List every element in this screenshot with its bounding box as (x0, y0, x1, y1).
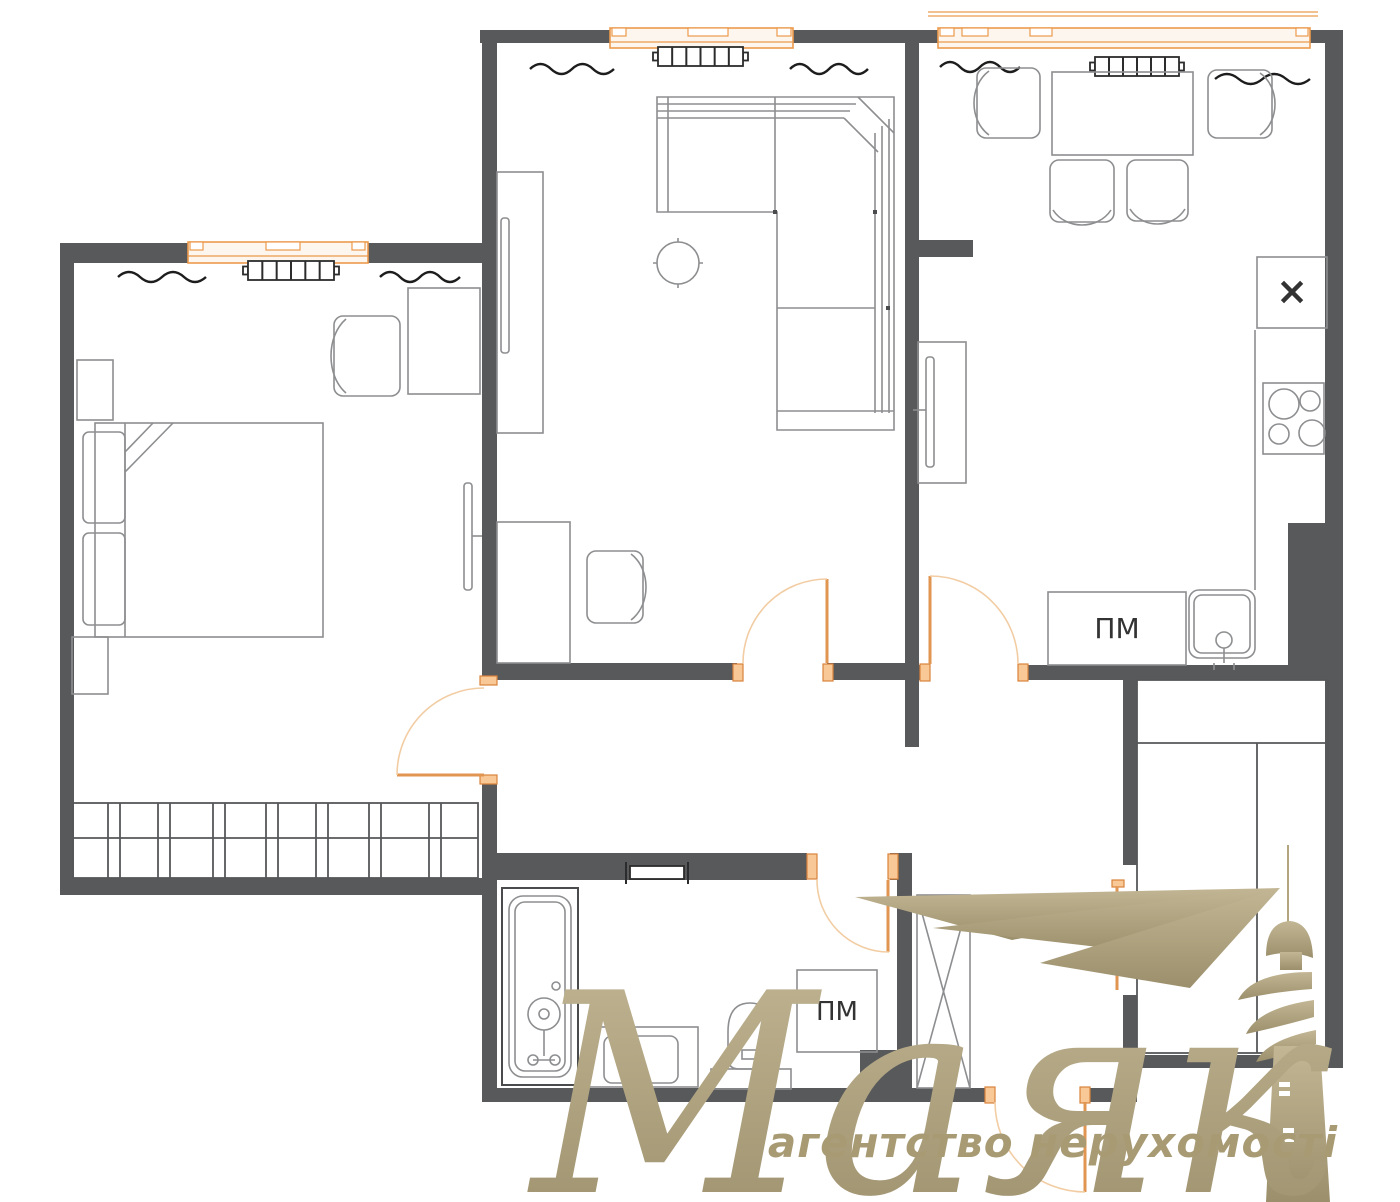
stove-burner (1269, 389, 1299, 419)
wall-living-top-right (793, 30, 920, 43)
door-jamb-kitchen (1018, 664, 1028, 681)
door-jamb-wardrobe (1112, 880, 1124, 887)
bed-blanket-fold (125, 423, 173, 472)
floorplan-canvas: ×ПМПММаякагентство нерухомості (0, 0, 1400, 1202)
curtain-living-left (530, 64, 614, 74)
wall-bedroom-bottom (60, 878, 497, 895)
curtain-bedroom-left (118, 272, 206, 282)
door-jamb-bath (807, 854, 817, 879)
bed-pillow (83, 432, 125, 523)
chair-living-seat (587, 551, 643, 623)
window-bedroom-mullion (190, 242, 203, 250)
radiator-kitchen (1090, 57, 1184, 76)
window-living-mullion (688, 28, 728, 36)
wall-living-kitchen (905, 30, 919, 747)
wall-living-top-left (480, 30, 610, 43)
side-table-ticks (653, 238, 703, 288)
dining-chair (1127, 160, 1188, 224)
towel-warmer-body (630, 866, 684, 879)
window-kitchen-mullion (940, 28, 954, 36)
sofa-button (886, 306, 890, 310)
sofa-button (773, 210, 777, 214)
kitchen-sink-basin (1194, 595, 1250, 653)
bed-pillow (83, 533, 125, 625)
sofa-corner (844, 97, 894, 152)
dishwasher-label: ПМ (1094, 612, 1139, 645)
wall-living-bottom-left (497, 663, 737, 680)
wardrobe-bedroom-dividers (108, 803, 441, 878)
door-jamb-bedroom (480, 676, 497, 685)
towel-warmer (626, 862, 688, 884)
radiator-living (653, 47, 748, 66)
door-jamb-living (733, 664, 743, 681)
kitchen-faucet (1216, 632, 1232, 648)
door-jamb-bath (888, 854, 898, 879)
door-jamb-kitchen (920, 664, 930, 681)
dining-table (1052, 72, 1193, 155)
logo-subtitle: агентство нерухомості (768, 1118, 1338, 1167)
door-arc-bedroom (397, 688, 484, 775)
sofa-back-right (875, 119, 889, 413)
window-living-mullion (777, 28, 791, 36)
window-kitchen-mullion (1030, 28, 1052, 36)
door-arc-kitchen (930, 576, 1018, 664)
chair-living (587, 551, 646, 623)
wall-living-bottom-right (827, 663, 905, 680)
sofa-button (873, 210, 877, 214)
window-kitchen-mullion (962, 28, 988, 36)
tv-stand-living (497, 172, 543, 433)
window-bedroom-mullion (352, 242, 365, 250)
floorplan-svg: ×ПМПММаякагентство нерухомості (0, 0, 1400, 1202)
stove-burner (1299, 420, 1325, 446)
wardrobe-bedroom (73, 803, 478, 878)
stove-burner (1300, 391, 1320, 411)
dining-chair-seat (977, 68, 1040, 138)
radiator-bedroom (243, 261, 339, 280)
dining-chair-seat (1050, 160, 1114, 222)
wall-kitchen-bottom-right (1020, 665, 1343, 680)
dining-chair (974, 68, 1040, 138)
desk-bedroom (408, 288, 480, 394)
tv-kitchen (926, 357, 934, 467)
wall-bedroom-left (60, 243, 74, 895)
sofa-seat-dividers-right (777, 308, 894, 411)
nightstand (72, 637, 108, 694)
chair-bedroom (331, 316, 400, 396)
dining-chair (1050, 160, 1114, 225)
wall-kitchen-top-left (920, 30, 938, 43)
door-jamb-living (823, 664, 833, 681)
door-arc-living (743, 579, 827, 663)
window-kitchen (938, 28, 1310, 48)
desk-living (497, 522, 570, 663)
wall-bedroom-living (482, 30, 497, 677)
nightstand (77, 360, 113, 420)
window-bedroom-mullion (266, 242, 300, 250)
dining-chair-seat (1127, 160, 1188, 221)
side-table (657, 242, 699, 284)
stove-burner (1269, 424, 1289, 444)
window-kitchen-mullion (1296, 28, 1308, 36)
wall-bedroom-hall (482, 775, 497, 1100)
extract-symbol: × (1276, 269, 1308, 313)
wall-kitchen-stub (919, 240, 973, 257)
wall-ward-left-top (1123, 680, 1137, 865)
curtain-bedroom-right (380, 272, 460, 282)
chair-bedroom-seat (334, 316, 400, 396)
sofa-back-lines (657, 104, 856, 118)
tv-living (501, 218, 509, 353)
window-living-mullion (612, 28, 626, 36)
curtain-living-right (790, 64, 868, 74)
bed (95, 423, 323, 637)
logo-watermark: Маякагентство нерухомості (527, 845, 1338, 1202)
tv-bedroom (464, 483, 472, 590)
